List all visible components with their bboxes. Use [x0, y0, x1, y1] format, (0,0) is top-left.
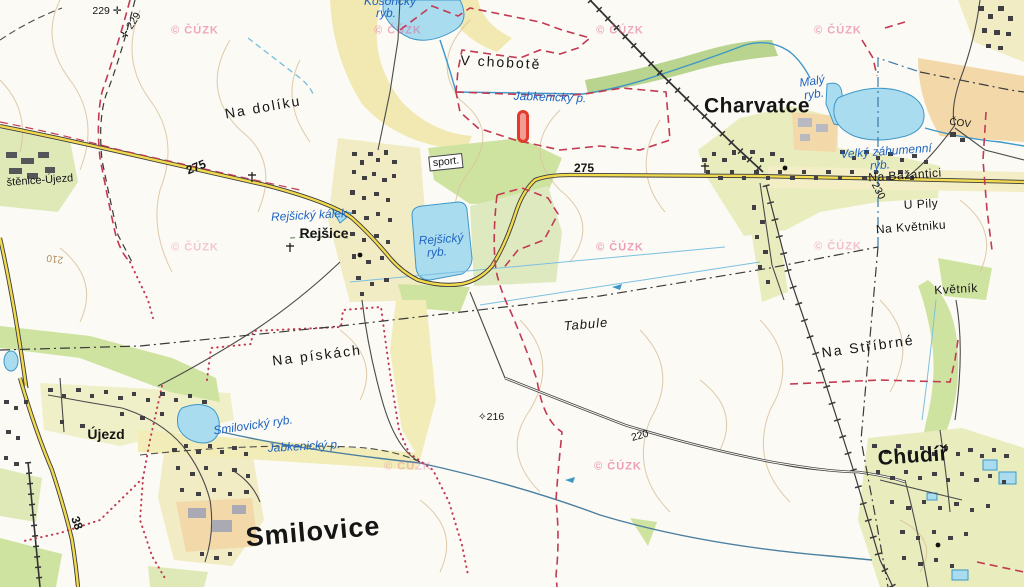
track-220: [505, 378, 905, 482]
kosoricky-pond: [383, 0, 464, 40]
landuse-areas: [0, 0, 1024, 587]
church-dot-chudir: [936, 543, 941, 548]
rejsicky-pond: [412, 202, 472, 280]
boundary-dashdot-blue: [878, 58, 920, 247]
church-dot-rejsice: [358, 253, 363, 258]
church-dot-charvatce: [783, 166, 788, 171]
stream-arrows: [565, 284, 622, 483]
topo-map[interactable]: 229 ✛✛ 229Na dolíkuV chobotěJabkenický p…: [0, 0, 1024, 587]
selected-parcel-marker[interactable]: [517, 110, 529, 143]
velky-zahumenni-pond: [834, 88, 924, 140]
map-graphics: [0, 0, 1024, 587]
